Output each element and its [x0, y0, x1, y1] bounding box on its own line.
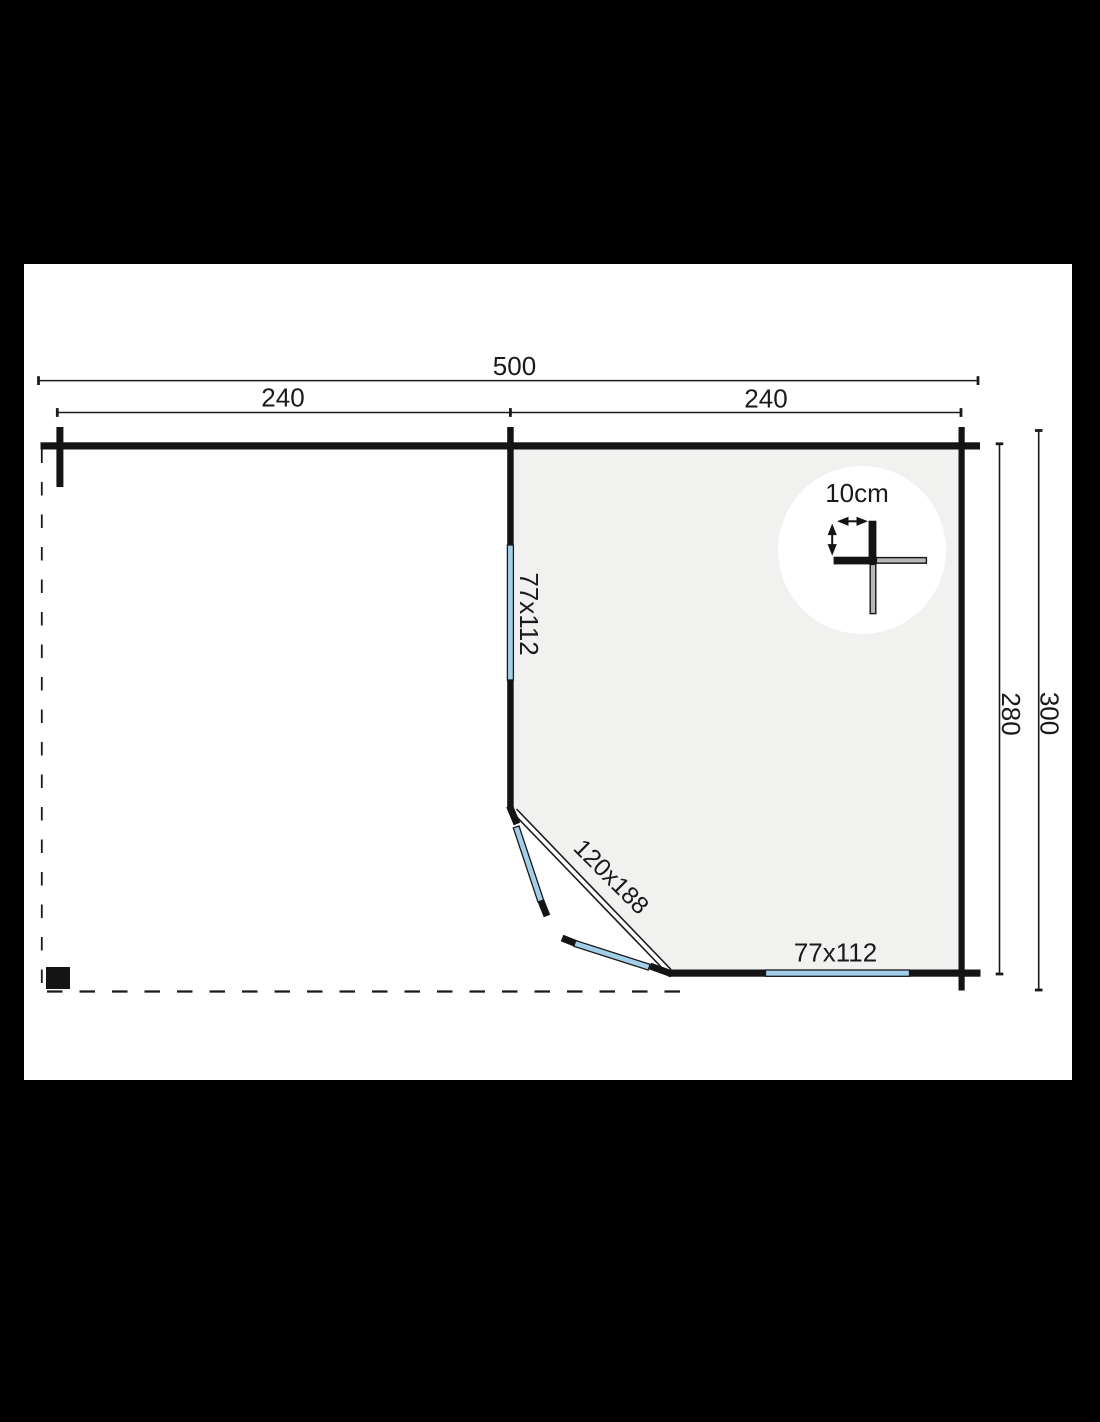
svg-text:77x112: 77x112 [514, 572, 544, 655]
svg-text:300: 300 [1035, 692, 1065, 735]
svg-text:10cm: 10cm [825, 478, 889, 508]
svg-text:280: 280 [996, 692, 1026, 735]
svg-text:240: 240 [744, 384, 787, 414]
svg-text:500: 500 [493, 351, 536, 381]
svg-text:77x112: 77x112 [794, 938, 877, 968]
svg-text:240: 240 [261, 383, 304, 413]
